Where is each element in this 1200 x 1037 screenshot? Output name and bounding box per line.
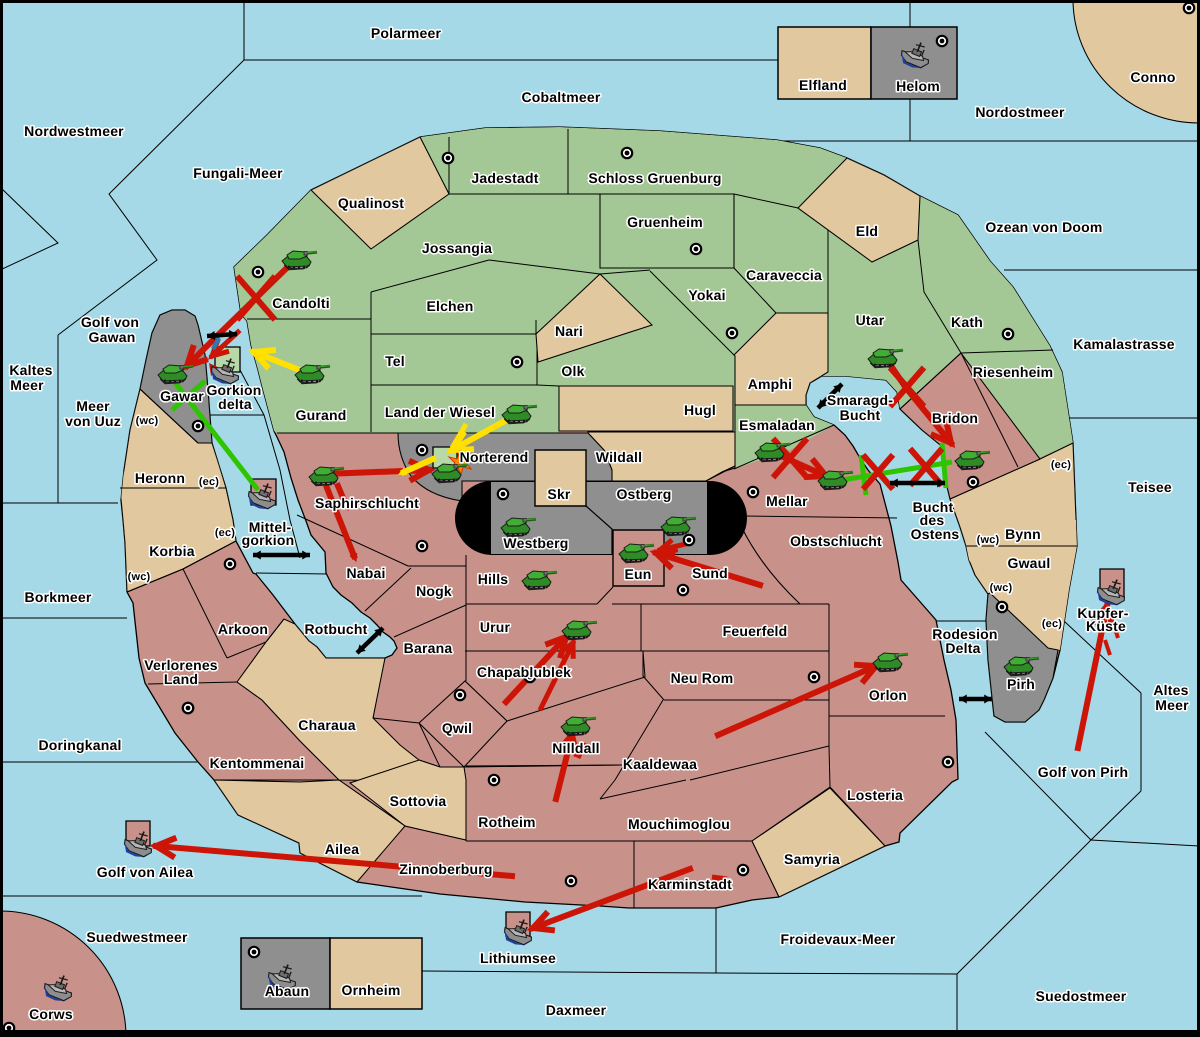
svg-text:Bynn: Bynn	[1005, 526, 1041, 542]
svg-text:Jossangia: Jossangia	[422, 240, 492, 256]
svg-text:Elfland: Elfland	[799, 77, 847, 93]
svg-text:Meer: Meer	[76, 398, 110, 414]
svg-text:Delta: Delta	[945, 640, 980, 656]
svg-text:Kamalastrasse: Kamalastrasse	[1073, 336, 1174, 352]
svg-text:Doringkanal: Doringkanal	[38, 737, 121, 753]
svg-text:Mouchimoglou: Mouchimoglou	[628, 816, 730, 832]
svg-text:Gwaul: Gwaul	[1007, 555, 1050, 571]
svg-text:Riesenheim: Riesenheim	[973, 364, 1054, 380]
svg-text:Heronn: Heronn	[135, 470, 185, 486]
svg-text:Norterend: Norterend	[460, 449, 529, 465]
svg-text:Ozean von Doom: Ozean von Doom	[985, 219, 1102, 235]
svg-text:Esmaladan: Esmaladan	[739, 417, 815, 433]
svg-text:Lithiumsee: Lithiumsee	[480, 950, 556, 966]
svg-text:Land der Wiesel: Land der Wiesel	[385, 404, 495, 420]
svg-text:Nari: Nari	[555, 323, 583, 339]
svg-text:Borkmeer: Borkmeer	[25, 589, 92, 605]
svg-text:Obstschlucht: Obstschlucht	[790, 533, 882, 549]
svg-text:Meer: Meer	[10, 377, 44, 393]
svg-text:Küste: Küste	[1086, 618, 1126, 634]
svg-text:Samyria: Samyria	[784, 851, 840, 867]
svg-text:Fungali-Meer: Fungali-Meer	[193, 165, 283, 181]
svg-text:(ec): (ec)	[1051, 459, 1071, 471]
svg-text:Kaltes: Kaltes	[9, 362, 52, 378]
svg-text:Hills: Hills	[478, 571, 509, 587]
svg-text:Neu Rom: Neu Rom	[671, 670, 734, 686]
svg-text:(ec): (ec)	[1042, 618, 1062, 630]
svg-text:Caraveccia: Caraveccia	[746, 267, 822, 283]
svg-text:Smaragd-: Smaragd-	[827, 392, 893, 408]
svg-text:Barana: Barana	[404, 640, 453, 656]
svg-text:Candolti: Candolti	[272, 295, 330, 311]
svg-text:Golf von Pirh: Golf von Pirh	[1038, 764, 1129, 780]
svg-text:Utar: Utar	[856, 312, 885, 328]
svg-text:Eld: Eld	[856, 223, 878, 239]
svg-text:Jadestadt: Jadestadt	[471, 170, 538, 186]
svg-text:Arkoon: Arkoon	[218, 621, 268, 637]
svg-text:Teisee: Teisee	[1128, 479, 1172, 495]
svg-text:Westberg: Westberg	[503, 535, 568, 551]
svg-text:Korbia: Korbia	[149, 543, 195, 559]
svg-text:Polarmeer: Polarmeer	[371, 25, 442, 41]
svg-text:Pirh: Pirh	[1007, 676, 1035, 692]
svg-text:Nordostmeer: Nordostmeer	[975, 104, 1065, 120]
svg-text:Sund: Sund	[692, 565, 728, 581]
svg-text:Gurand: Gurand	[296, 407, 347, 423]
svg-text:Ailea: Ailea	[325, 841, 359, 857]
svg-text:Charaua: Charaua	[298, 717, 355, 733]
svg-text:Corws: Corws	[29, 1006, 73, 1022]
svg-text:Golf von Ailea: Golf von Ailea	[97, 864, 193, 880]
svg-text:Rotheim: Rotheim	[478, 814, 535, 830]
svg-text:Abaun: Abaun	[265, 983, 310, 999]
svg-text:Wildall: Wildall	[596, 449, 642, 465]
svg-text:Froidevaux-Meer: Froidevaux-Meer	[780, 931, 895, 947]
svg-text:Schloss Gruenburg: Schloss Gruenburg	[588, 170, 721, 186]
svg-text:(wc): (wc)	[128, 571, 151, 583]
svg-text:delta: delta	[218, 396, 252, 412]
svg-text:von Uuz: von Uuz	[65, 413, 121, 429]
svg-text:Amphi: Amphi	[748, 376, 793, 392]
svg-text:Zinnoberburg: Zinnoberburg	[399, 861, 492, 877]
svg-text:Nordwestmeer: Nordwestmeer	[24, 123, 124, 139]
svg-text:Suedwestmeer: Suedwestmeer	[86, 929, 188, 945]
svg-text:Hugl: Hugl	[684, 402, 716, 418]
svg-text:Rotbucht: Rotbucht	[304, 621, 367, 637]
svg-text:Saphirschlucht: Saphirschlucht	[315, 495, 419, 511]
svg-text:Helom: Helom	[896, 78, 940, 94]
svg-text:Meer: Meer	[1155, 697, 1189, 713]
svg-text:Yokai: Yokai	[688, 287, 725, 303]
svg-text:Kentommenai: Kentommenai	[210, 755, 305, 771]
svg-text:Gruenheim: Gruenheim	[627, 214, 703, 230]
svg-text:Conno: Conno	[1130, 69, 1175, 85]
svg-text:Ornheim: Ornheim	[342, 982, 401, 998]
svg-text:Gawan: Gawan	[89, 329, 136, 345]
svg-text:Urur: Urur	[480, 619, 511, 635]
svg-text:Nogk: Nogk	[416, 583, 452, 599]
svg-text:Cobaltmeer: Cobaltmeer	[521, 89, 600, 105]
svg-text:(ec): (ec)	[199, 476, 219, 488]
svg-text:(ec): (ec)	[215, 527, 235, 539]
svg-text:(wc): (wc)	[990, 582, 1013, 594]
svg-text:gorkion: gorkion	[242, 532, 295, 548]
svg-text:Gawar: Gawar	[160, 388, 204, 404]
svg-text:Tel: Tel	[385, 353, 405, 369]
svg-text:Land: Land	[164, 671, 198, 687]
svg-text:(wc): (wc)	[136, 415, 159, 427]
svg-text:Altes: Altes	[1153, 682, 1188, 698]
svg-text:Ostens: Ostens	[911, 526, 960, 542]
svg-text:Elchen: Elchen	[426, 298, 473, 314]
svg-text:Nilldall: Nilldall	[552, 740, 600, 756]
svg-text:Olk: Olk	[561, 363, 584, 379]
svg-text:Orlon: Orlon	[869, 687, 907, 703]
svg-text:Golf von: Golf von	[81, 314, 139, 330]
svg-text:(wc): (wc)	[977, 534, 1000, 546]
svg-text:Suedostmeer: Suedostmeer	[1036, 988, 1127, 1004]
svg-text:Bridon: Bridon	[932, 410, 978, 426]
svg-text:Feuerfeld: Feuerfeld	[723, 623, 788, 639]
svg-text:Ostberg: Ostberg	[616, 486, 671, 502]
svg-text:Mellar: Mellar	[766, 493, 808, 509]
svg-text:Eun: Eun	[624, 566, 651, 582]
svg-text:Qualinost: Qualinost	[338, 195, 404, 211]
svg-text:Sottovia: Sottovia	[390, 793, 447, 809]
svg-text:Chapablublek: Chapablublek	[477, 664, 571, 680]
svg-text:Kath: Kath	[951, 314, 983, 330]
svg-text:Kaaldewaa: Kaaldewaa	[623, 756, 697, 772]
svg-text:Qwil: Qwil	[442, 720, 472, 736]
svg-text:Nabai: Nabai	[346, 565, 385, 581]
svg-text:Losteria: Losteria	[847, 787, 903, 803]
svg-text:Daxmeer: Daxmeer	[546, 1002, 607, 1018]
svg-text:Skr: Skr	[547, 486, 571, 502]
svg-text:Karminstadt: Karminstadt	[648, 876, 732, 892]
svg-text:Bucht: Bucht	[840, 407, 881, 423]
